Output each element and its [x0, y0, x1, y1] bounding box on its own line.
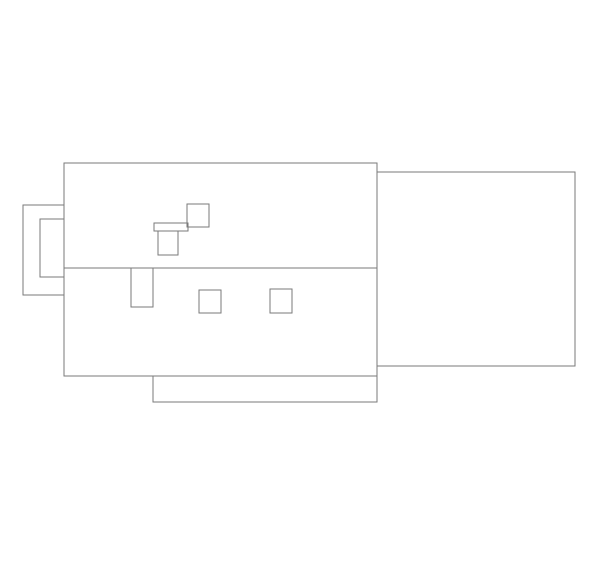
- horizontal-bar: [154, 223, 188, 231]
- technical-drawing-canvas: [0, 0, 600, 569]
- right-extension-outline: [377, 172, 575, 366]
- left-tab-inner-outline: [40, 219, 64, 277]
- small-square-right: [270, 289, 292, 313]
- main-body-outline: [64, 163, 377, 376]
- upper-small-square: [187, 204, 209, 227]
- vertical-slot-upper: [158, 231, 178, 255]
- drawing-page: [0, 0, 600, 569]
- bottom-tab-outline: [153, 376, 377, 402]
- vertical-slot-lower: [131, 268, 153, 307]
- small-square-left: [199, 290, 221, 313]
